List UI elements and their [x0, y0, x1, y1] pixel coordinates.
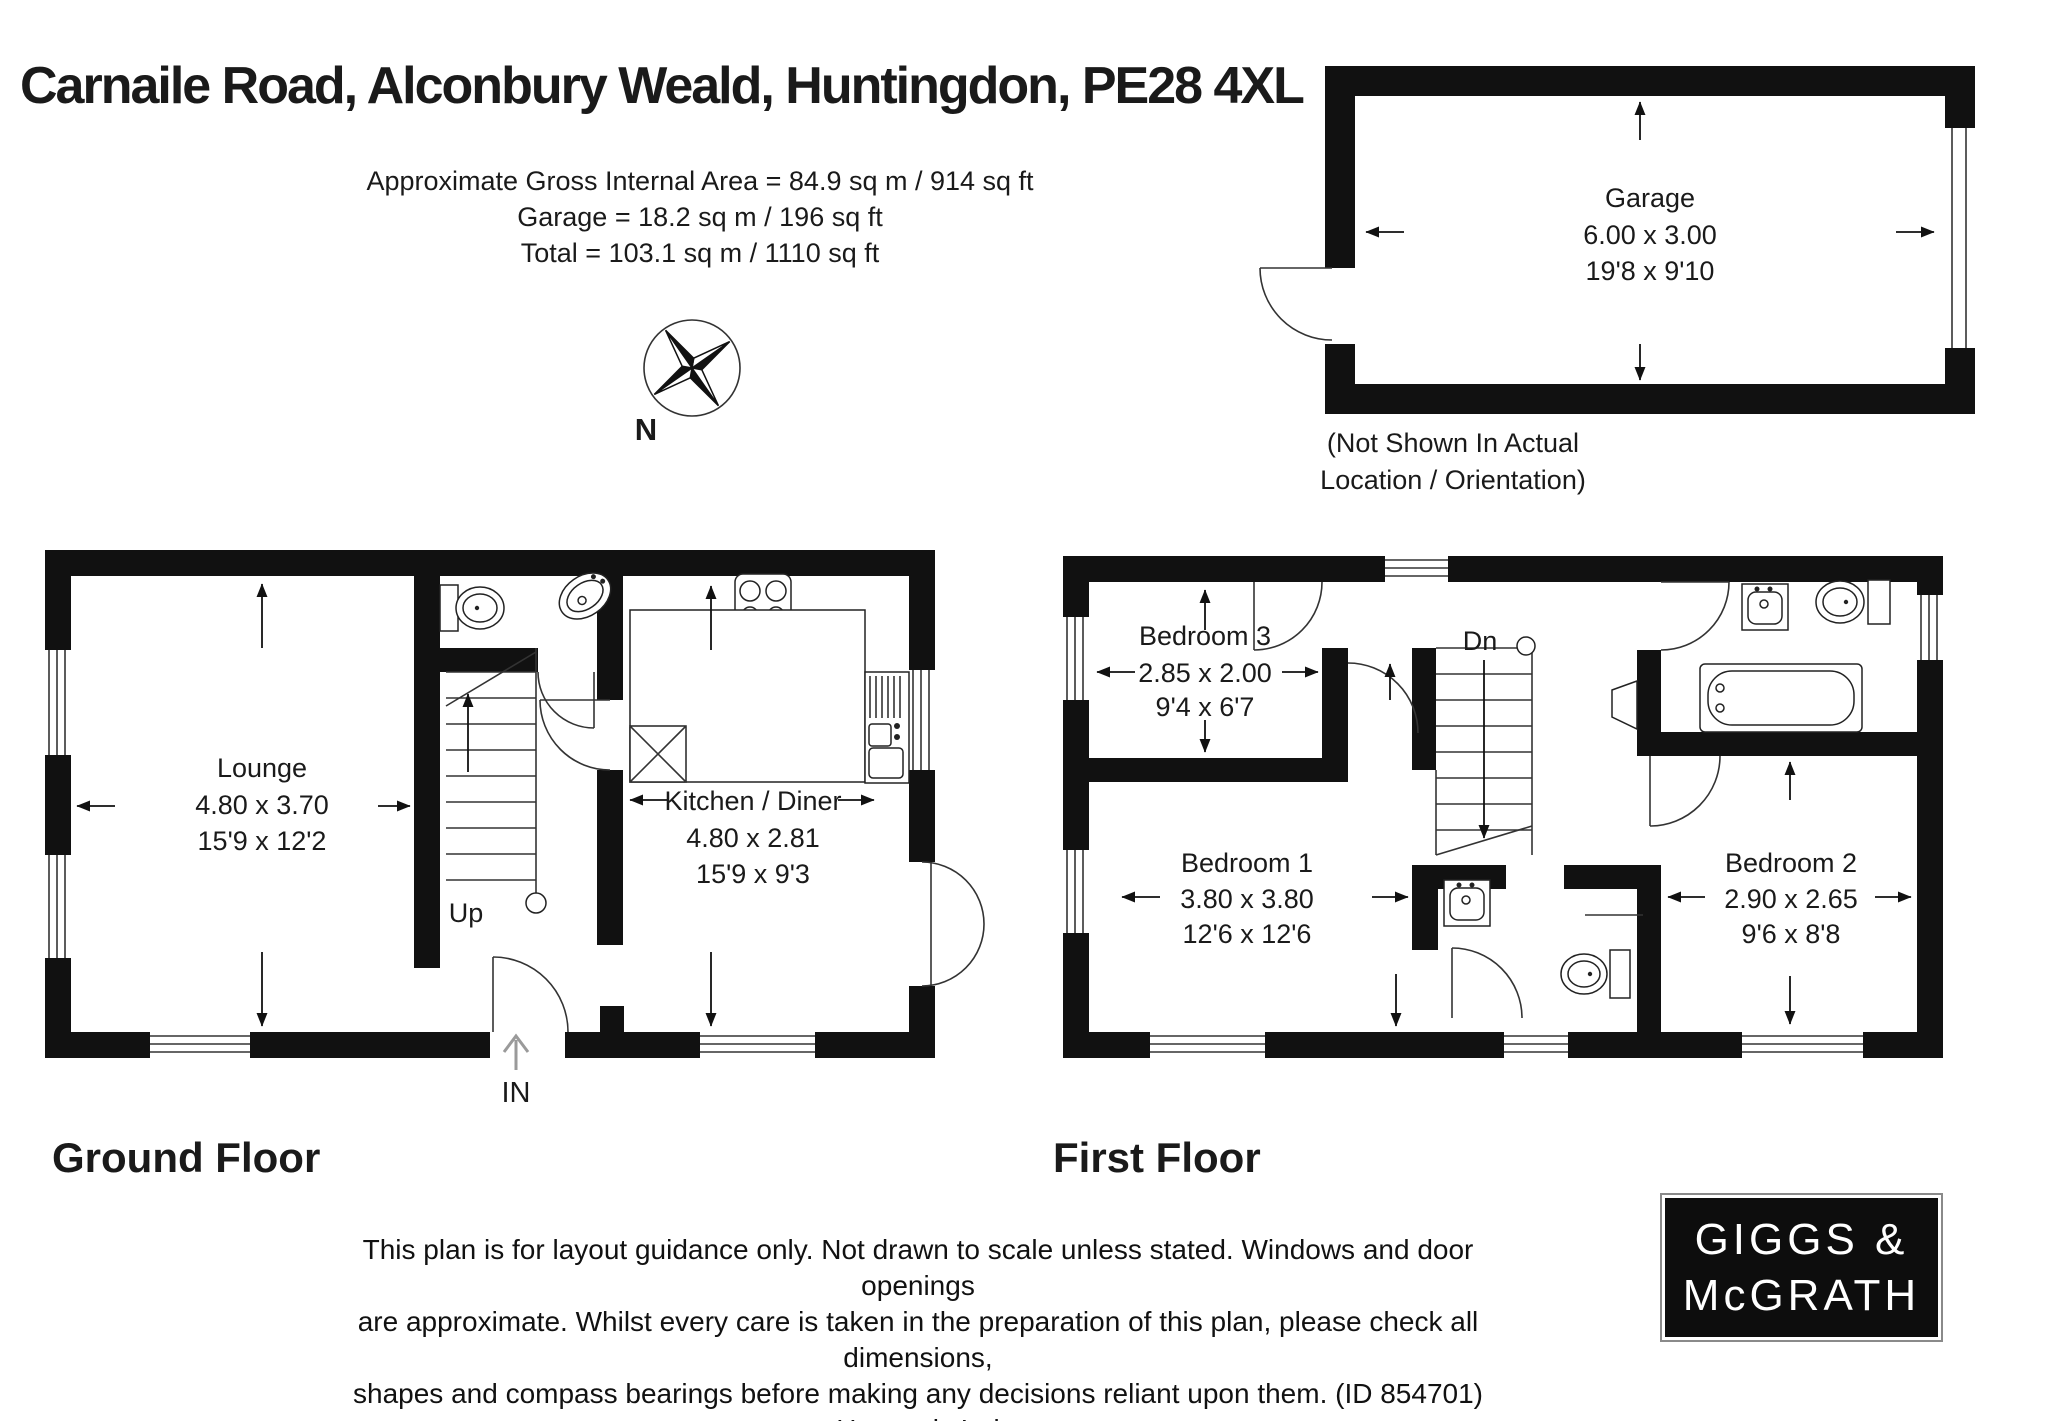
bathroom-door [1661, 582, 1729, 650]
bedroom1-name: Bedroom 1 [1181, 848, 1313, 878]
agency-logo-line1: GIGGS & [1695, 1214, 1909, 1266]
stairs-up-label: Up [449, 898, 484, 928]
bedroom1-dim-ft: 12'6 x 12'6 [1183, 919, 1312, 949]
sink-icon [865, 672, 909, 783]
bedroom1-dim-m: 3.80 x 3.80 [1180, 884, 1314, 914]
floorplan-page: Carnaile Road, Alconbury Weald, Huntingd… [0, 0, 2048, 1421]
entrance-in-label: IN [502, 1077, 531, 1109]
bath-icon [1700, 664, 1862, 732]
bedroom2-name: Bedroom 2 [1725, 848, 1857, 878]
first-floor-label: First Floor [1053, 1134, 1261, 1181]
disclaimer-text: This plan is for layout guidance only. N… [318, 1232, 1518, 1421]
shower-toilet-icon [1561, 950, 1630, 998]
bedroom2-door [1650, 756, 1720, 826]
garage-plan: Garage 6.00 x 3.00 19'8 x 9'10 (Not Show… [1260, 66, 1975, 495]
lounge-dim-m: 4.80 x 3.70 [195, 790, 329, 820]
garage-dim-m: 6.00 x 3.00 [1583, 220, 1717, 250]
disclaimer-line-4: Housepix Ltd [318, 1412, 1518, 1421]
bathroom-sink-icon [1742, 584, 1788, 630]
lounge-dim-ft: 15'9 x 12'2 [198, 826, 327, 856]
ground-floor-plan: Up [45, 550, 984, 1181]
garage-note-line1: (Not Shown In Actual [1327, 428, 1579, 458]
bedroom2-dim-m: 2.90 x 2.65 [1724, 884, 1858, 914]
disclaimer-line-3: shapes and compass bearings before makin… [318, 1376, 1518, 1412]
bedroom3-dim-m: 2.85 x 2.00 [1138, 658, 1272, 688]
cupboard-icon [1612, 681, 1637, 729]
stairs-down: Dn [1436, 626, 1535, 855]
garage-dim-ft: 19'8 x 9'10 [1586, 256, 1715, 286]
disclaimer-line-1: This plan is for layout guidance only. N… [318, 1232, 1518, 1304]
page-title: Carnaile Road, Alconbury Weald, Huntingd… [20, 57, 1304, 115]
entrance-door [493, 957, 568, 1032]
stairs-down-label: Dn [1463, 626, 1498, 656]
bedroom3-dim-ft: 9'4 x 6'7 [1156, 692, 1255, 722]
agency-logo-line2: McGRATH [1683, 1270, 1920, 1322]
kitchen-dim-m: 4.80 x 2.81 [686, 823, 820, 853]
appliance-icon [630, 726, 686, 782]
french-doors [922, 862, 984, 986]
ground-floor-label: Ground Floor [52, 1134, 320, 1181]
shower-sink-icon [1444, 880, 1490, 926]
garage-name: Garage [1605, 183, 1695, 213]
first-floor-plan: Dn [1053, 556, 1943, 1181]
area-line-2: Garage = 18.2 sq m / 196 sq ft [517, 202, 883, 232]
area-line-1: Approximate Gross Internal Area = 84.9 s… [366, 166, 1034, 196]
kitchen-name: Kitchen / Diner [664, 786, 841, 816]
stairs-up: Up [446, 648, 546, 928]
bedroom2-dim-ft: 9'6 x 8'8 [1742, 919, 1841, 949]
bedroom3-name: Bedroom 3 [1139, 621, 1271, 651]
garage-note-line2: Location / Orientation) [1320, 465, 1586, 495]
disclaimer-line-2: are approximate. Whilst every care is ta… [318, 1304, 1518, 1376]
bathroom-toilet-icon [1816, 580, 1890, 624]
lounge-name: Lounge [217, 753, 307, 783]
landing-door [1348, 663, 1418, 733]
area-line-3: Total = 103.1 sq m / 1110 sq ft [521, 238, 880, 268]
kitchen-door [540, 700, 610, 770]
compass-north-label: N [635, 412, 657, 447]
toilet-icon [440, 585, 504, 631]
compass-icon: N [635, 320, 740, 447]
agency-logo: GIGGS & McGRATH [1660, 1193, 1943, 1342]
kitchen-dim-ft: 15'9 x 9'3 [696, 859, 810, 889]
